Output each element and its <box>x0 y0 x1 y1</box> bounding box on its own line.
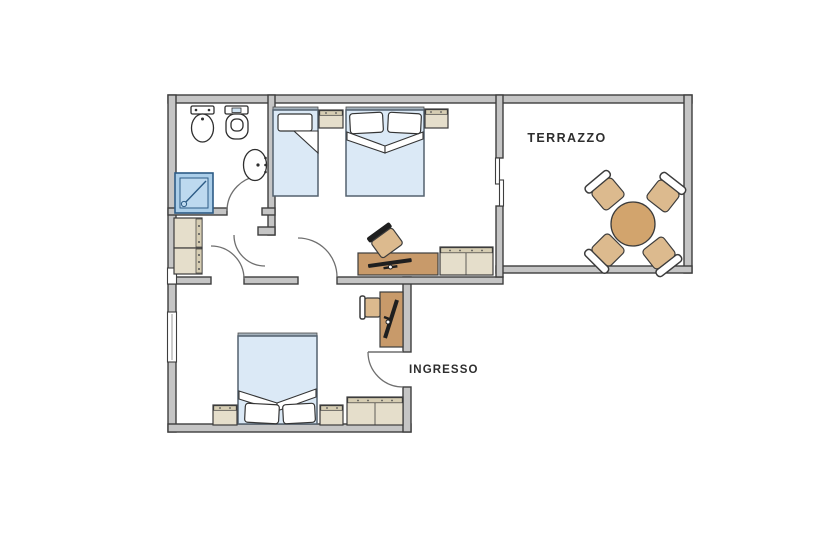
entrance-label: INGRESSO <box>409 364 479 376</box>
double-bed <box>238 333 317 424</box>
wall-right-lower <box>403 387 411 432</box>
nightstand <box>319 110 343 128</box>
entrance-door-arc <box>368 352 403 387</box>
double-bed <box>346 107 424 196</box>
desk-chair <box>360 296 380 319</box>
dresser <box>440 247 493 275</box>
nightstand <box>213 405 237 425</box>
single-bed <box>273 107 318 196</box>
wall-top <box>168 95 692 103</box>
floor-plan-canvas: TERRAZZO <box>0 0 820 560</box>
terrace-glass-door-panel-1 <box>496 158 500 184</box>
desk <box>380 292 403 347</box>
bedroom-bottom <box>213 292 403 425</box>
wall-bedroom-terrace-lower <box>496 206 503 277</box>
nightstand <box>425 109 448 128</box>
wall-bathroom-bottom-b <box>262 208 275 215</box>
bathroom <box>175 106 267 213</box>
terrace-chair <box>644 171 687 215</box>
bench <box>347 397 403 425</box>
shower-icon <box>175 173 213 213</box>
toilet-icon <box>225 106 248 139</box>
terrace: TERRAZZO <box>527 131 687 278</box>
bedrooms-connecting-door-arc <box>298 238 337 277</box>
wall-mid-b <box>244 277 298 284</box>
bedroom-top <box>273 107 493 275</box>
terrace-label: TERRAZZO <box>527 131 606 145</box>
floor-plan-drawing: TERRAZZO <box>0 0 820 560</box>
wall-right-upper <box>403 277 411 352</box>
terrace-glass-door-panel-2 <box>500 180 504 206</box>
wall-terrace-right <box>684 95 692 273</box>
wall-bedroom-terrace-upper <box>496 95 503 158</box>
nightstand <box>320 405 343 425</box>
bidet-icon <box>191 106 214 142</box>
wall-mid-c <box>337 277 503 284</box>
desk <box>358 253 438 275</box>
round-table <box>611 202 655 246</box>
hall-wardrobe <box>174 218 202 274</box>
sink-icon <box>244 150 267 181</box>
bathroom-door-arc <box>227 176 262 211</box>
wall-hall-stub <box>258 227 275 235</box>
